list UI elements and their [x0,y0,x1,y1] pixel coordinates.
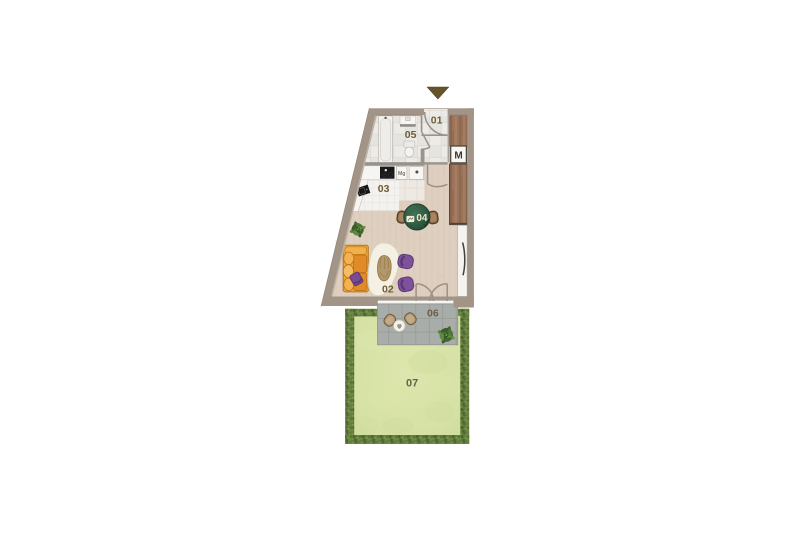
svg-text:01: 01 [431,115,443,127]
svg-text:07: 07 [406,377,418,389]
svg-text:06: 06 [427,307,439,319]
svg-text:03: 03 [378,183,390,195]
svg-text:02: 02 [382,284,394,296]
svg-text:M: M [454,151,462,162]
svg-text:05: 05 [405,129,417,141]
svg-text:Mg: Mg [398,171,406,177]
svg-text:04: 04 [416,213,428,224]
